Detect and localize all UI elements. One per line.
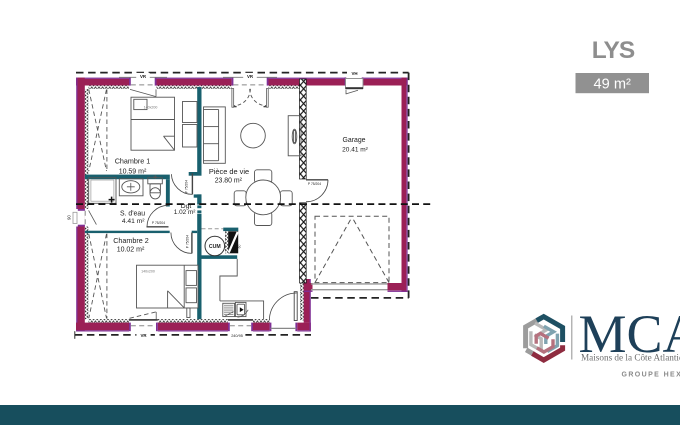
svg-text:140x200: 140x200: [144, 106, 158, 110]
svg-text:P 75/204: P 75/204: [186, 235, 190, 248]
svg-text:P 75/204: P 75/204: [152, 221, 165, 225]
svg-text:23.80 m²: 23.80 m²: [215, 178, 243, 185]
svg-text:VR: VR: [140, 74, 147, 79]
svg-text:10.59 m²: 10.59 m²: [119, 169, 147, 176]
svg-text:GROUPE HEXAOM: GROUPE HEXAOM: [622, 371, 680, 378]
svg-text:Chambre 2: Chambre 2: [113, 236, 149, 245]
svg-text:10.02 m²: 10.02 m²: [117, 246, 145, 253]
svg-text:S. d'eau: S. d'eau: [120, 211, 145, 218]
svg-text:P 75/204: P 75/204: [308, 182, 321, 186]
svg-text:Garage: Garage: [343, 137, 366, 144]
svg-text:P 75/204: P 75/204: [185, 180, 189, 193]
svg-text:60: 60: [238, 245, 242, 249]
svg-text:VH: VH: [351, 71, 357, 76]
svg-text:49 m²: 49 m²: [594, 77, 631, 93]
svg-text:LYS: LYS: [592, 37, 635, 64]
svg-text:CUM: CUM: [209, 244, 221, 250]
svg-text:1.02 m²: 1.02 m²: [174, 209, 196, 216]
svg-text:VR: VR: [140, 333, 147, 338]
svg-text:VR: VR: [247, 74, 254, 79]
svg-text:Chambre 1: Chambre 1: [115, 157, 151, 166]
svg-text:Pièce de vie: Pièce de vie: [209, 167, 249, 176]
svg-text:140x200: 140x200: [141, 269, 155, 273]
svg-text:90: 90: [67, 215, 72, 220]
svg-text:Maisons de la Côte Atlantique: Maisons de la Côte Atlantique: [581, 352, 680, 362]
svg-text:4.41 m²: 4.41 m²: [122, 218, 145, 225]
svg-text:240/95: 240/95: [231, 334, 243, 338]
svg-text:20.41 m²: 20.41 m²: [342, 147, 368, 154]
